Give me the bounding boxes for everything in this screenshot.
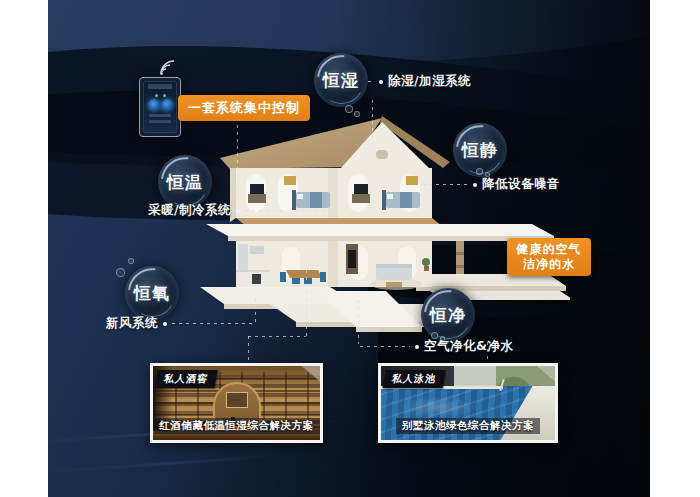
callout-healthy-line1: 健康的空气 bbox=[513, 242, 585, 257]
label-row-heng-jing: 降低设备噪音 bbox=[422, 176, 560, 193]
connector-wine-2 bbox=[248, 336, 306, 337]
bubble-heng-wen-label: 恒温 bbox=[167, 171, 203, 194]
bubble-heng-yang-label: 恒氧 bbox=[134, 282, 170, 305]
connector-phone bbox=[237, 125, 238, 203]
phone-screen bbox=[143, 81, 177, 133]
bubble-heng-shi-label: 恒湿 bbox=[323, 69, 359, 92]
mini-bubble bbox=[476, 168, 483, 175]
label-row-heng-jing2: 空气净化&净水 bbox=[360, 338, 513, 355]
bubble-heng-jing2: 恒净 bbox=[421, 288, 475, 342]
connector-wine-3 bbox=[248, 336, 249, 362]
label-row-heng-wen: 采暖/制冷系统 bbox=[148, 202, 329, 219]
wine-cellar-tag: 私人酒窖 bbox=[154, 370, 217, 388]
wifi-icon bbox=[158, 58, 178, 76]
pool-panel: 私人泳池 别墅泳池绿色综合解决方案 bbox=[378, 363, 558, 443]
knob-icon bbox=[161, 99, 173, 111]
connector-wine-1 bbox=[306, 270, 307, 336]
bullet-dot bbox=[415, 345, 419, 349]
label-heng-jing-desc: 降低设备噪音 bbox=[482, 176, 560, 193]
label-heng-shi-desc: 除湿/加湿系统 bbox=[388, 73, 471, 90]
wine-cellar-caption: 红酒储藏低温恒湿综合解决方案 bbox=[154, 418, 320, 434]
mini-bubble bbox=[116, 268, 125, 277]
mini-bubble bbox=[485, 172, 490, 177]
label-heng-yang-desc: 新风系统 bbox=[106, 315, 158, 332]
mini-bubble bbox=[354, 111, 360, 117]
bullet-dot bbox=[473, 183, 477, 187]
bubble-heng-wen: 恒温 bbox=[158, 155, 212, 209]
smart-panel-phone-icon bbox=[139, 77, 181, 137]
mini-bubble bbox=[431, 332, 438, 339]
bubble-heng-shi: 恒湿 bbox=[314, 53, 368, 107]
label-row-heng-yang: 新风系统 bbox=[106, 315, 256, 332]
bullet-dot bbox=[236, 209, 240, 213]
label-heng-wen-desc: 采暖/制冷系统 bbox=[148, 202, 231, 219]
phone-status-dots bbox=[144, 92, 176, 99]
callout-central-control-text: 一套系统集中控制 bbox=[188, 100, 300, 115]
pool-tag: 私人泳池 bbox=[382, 370, 445, 388]
wine-cellar-panel: 私人酒窖 红酒储藏低温恒湿综合解决方案 bbox=[150, 363, 323, 443]
label-heng-jing2-desc: 空气净化&净水 bbox=[424, 338, 513, 355]
bullet-dot bbox=[379, 80, 383, 84]
knob-icon bbox=[148, 99, 160, 111]
phone-row bbox=[149, 114, 171, 117]
bubble-heng-yang: 恒氧 bbox=[125, 266, 179, 320]
label-row-heng-shi: 除湿/加湿系统 bbox=[368, 73, 471, 90]
callout-healthy: 健康的空气 洁净的水 bbox=[507, 238, 591, 276]
callout-healthy-line2: 洁净的水 bbox=[513, 257, 585, 272]
mini-bubble bbox=[440, 336, 445, 341]
mini-bubble bbox=[345, 105, 353, 113]
callout-central-control: 一套系统集中控制 bbox=[178, 95, 310, 121]
phone-control-knobs bbox=[144, 99, 176, 111]
bullet-dot bbox=[163, 322, 167, 326]
mini-bubble bbox=[128, 258, 134, 264]
phone-row bbox=[149, 120, 171, 123]
phone-header-bar bbox=[148, 84, 172, 89]
connector-hengjing2 bbox=[358, 300, 359, 344]
infographic-canvas: 一套系统集中控制 健康的空气 洁净的水 恒湿 除湿/加湿系统 恒静 降低设备噪音… bbox=[48, 0, 650, 497]
pool-caption: 别墅泳池绿色综合解决方案 bbox=[396, 418, 540, 434]
bubble-heng-jing2-label: 恒净 bbox=[430, 304, 466, 327]
connector-hengshi bbox=[372, 100, 373, 144]
bubble-heng-jing-label: 恒静 bbox=[462, 139, 498, 162]
